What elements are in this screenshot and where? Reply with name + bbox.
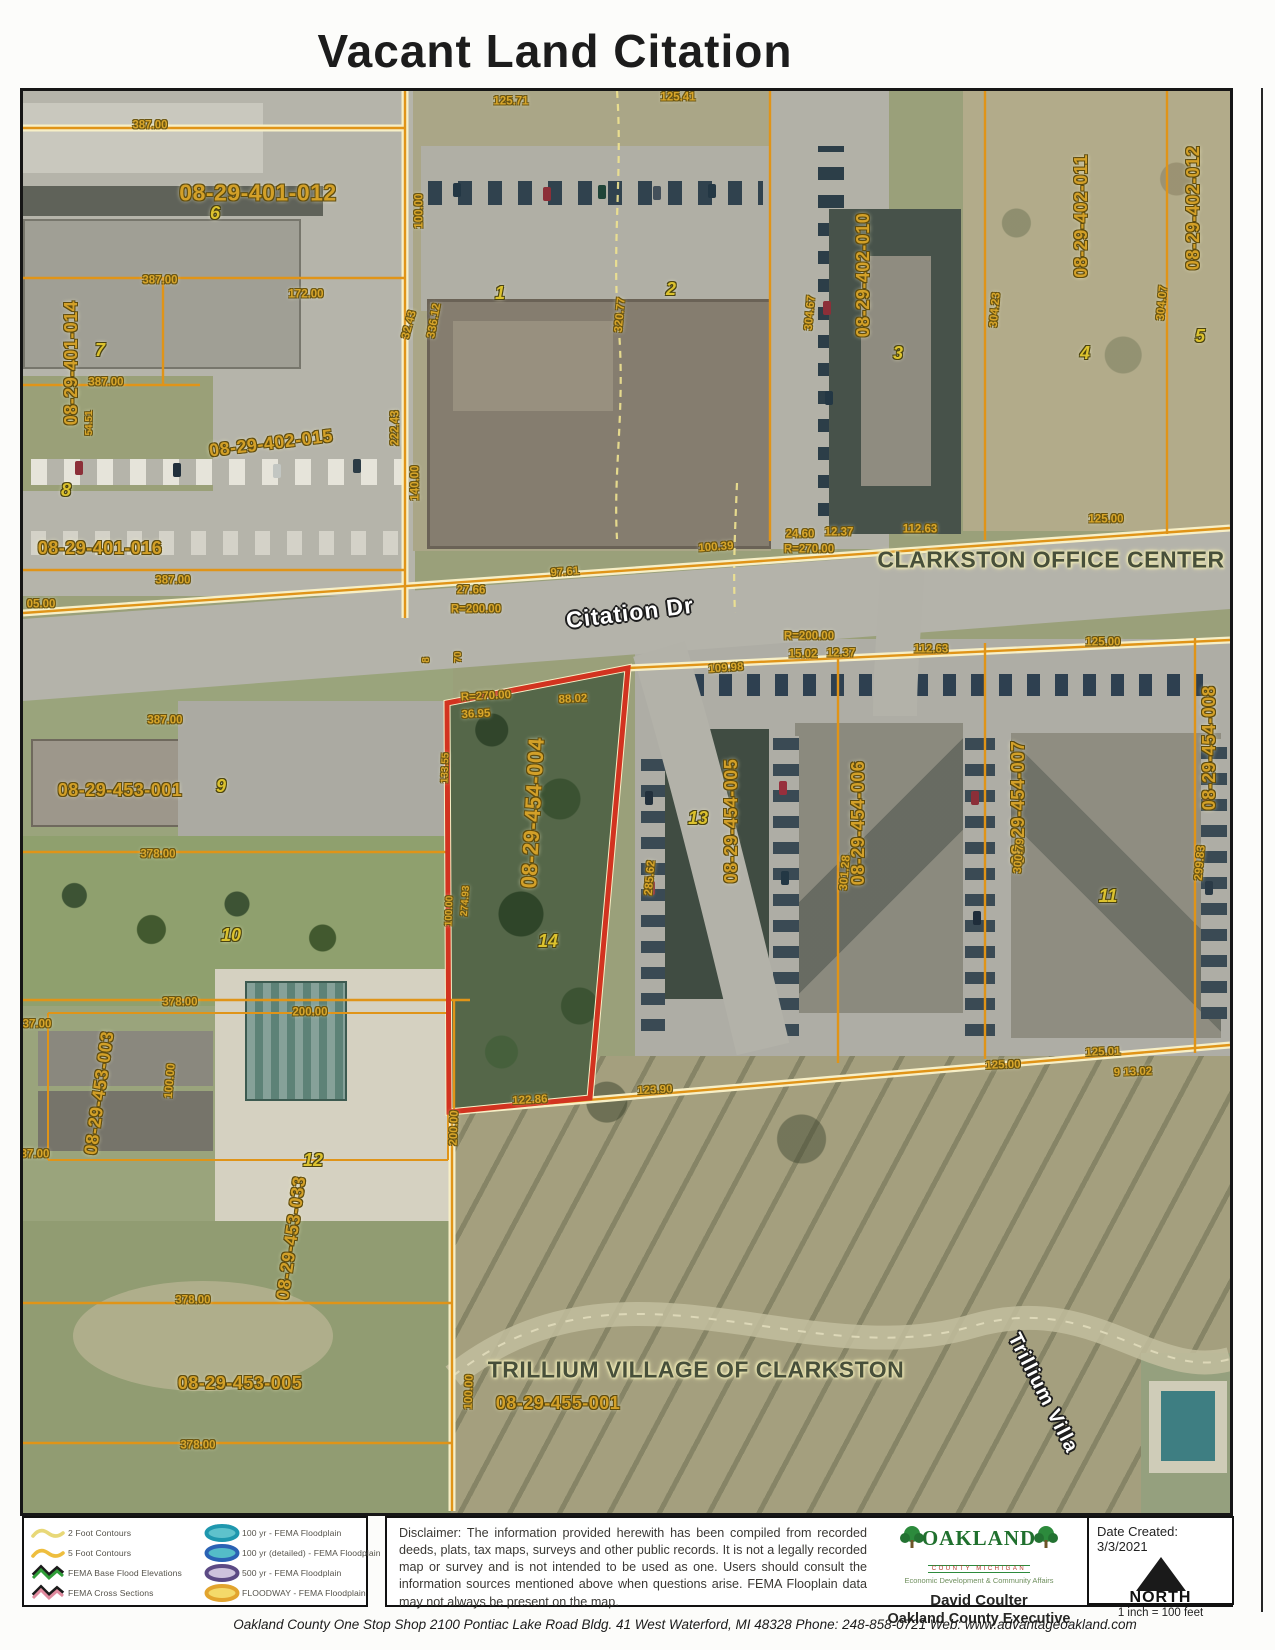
legend-column-left: 2 Foot Contours5 Foot ContoursFEMA Base … <box>28 1523 182 1603</box>
map-label: 08-29-454-005 <box>722 759 740 884</box>
map-label: R=270.00 <box>461 690 512 704</box>
map-label: 9 13.02 <box>1114 1067 1153 1080</box>
map-legend: 2 Foot Contours5 Foot ContoursFEMA Base … <box>22 1516 368 1607</box>
map-label: 125.00 <box>985 1060 1021 1073</box>
map-label: CLARKSTON OFFICE CENTER <box>877 549 1224 572</box>
map-label: 08-29-401-016 <box>38 539 163 557</box>
map-label: 1 <box>495 284 505 302</box>
contour-5ft-icon <box>28 1545 68 1561</box>
map-label: 9 <box>216 777 226 795</box>
map-label: 08-29-453-005 <box>178 1374 303 1392</box>
floodplain-100yr-detailed-icon <box>202 1544 242 1562</box>
map-label: 123.90 <box>637 1084 673 1097</box>
floodplain-500yr-icon <box>202 1564 242 1582</box>
floodway-icon <box>202 1584 242 1602</box>
legend-item: 100 yr (detailed) - FEMA Floodplain <box>202 1543 381 1563</box>
map-label: 301.28 <box>839 855 854 891</box>
map-label: 387.00 <box>142 275 177 287</box>
north-label: NORTH <box>1089 1589 1232 1607</box>
legend-item: 100 yr - FEMA Floodplain <box>202 1523 381 1543</box>
org-subtitle: COUNTY MICHIGAN <box>928 1565 1030 1573</box>
map-label: 12.37 <box>825 527 854 539</box>
map-label: 304.67 <box>804 295 819 331</box>
executive-name: David Coulter <box>879 1592 1079 1609</box>
org-name: OAKLAND <box>922 1526 1036 1550</box>
map-label: 2 <box>666 280 676 298</box>
map-label: 304.07 <box>1156 285 1171 321</box>
map-label: 13 <box>688 809 708 827</box>
page-title: Vacant Land Citation <box>0 24 1110 78</box>
tree-icon <box>1034 1526 1058 1548</box>
legend-item: 2 Foot Contours <box>28 1523 182 1543</box>
map-label: 387.00 <box>155 575 190 587</box>
legend-item: 500 yr - FEMA Floodplain <box>202 1563 381 1583</box>
info-panel: Disclaimer: The information provided her… <box>385 1516 1233 1607</box>
map-label: 6 <box>210 204 220 222</box>
map-label: 125.71 <box>493 96 528 108</box>
oakland-county-logo: OAKLAND <box>894 1522 1064 1552</box>
map-label: 12 <box>303 1151 323 1169</box>
map-label: 300.79 <box>1013 838 1028 874</box>
map-label: 4 <box>1080 344 1090 362</box>
map-label: 97.61 <box>550 566 580 579</box>
floodplain-100yr-icon <box>202 1524 242 1542</box>
map-label: R=270.00 <box>784 544 834 556</box>
map-label: 32.43 <box>401 310 420 341</box>
legend-item-label: 100 yr (detailed) - FEMA Floodplain <box>242 1548 381 1558</box>
map-label: 100.00 <box>464 1374 477 1410</box>
vacant-land-citation-page: { "title": "Vacant Land Citation", "map"… <box>0 0 1275 1650</box>
map-label: 08-29-402-011 <box>1072 154 1090 278</box>
credit-block: OAKLAND COUNTY MICHIGAN Economic Develop… <box>879 1522 1079 1627</box>
map-label: 08-29-453-003 <box>81 1030 116 1156</box>
map-label: 378.00 <box>162 997 197 1009</box>
map-label: 88.02 <box>558 694 587 707</box>
map-label: 304.23 <box>989 292 1004 328</box>
map-label: 08-29-402-012 <box>1184 146 1202 271</box>
map-label: 15.02 <box>789 649 818 661</box>
map-label: 109.98 <box>708 662 744 676</box>
date-north-box: Date Created: 3/3/2021 NORTH 1 inch = 10… <box>1087 1516 1234 1605</box>
map-label: 378.00 <box>175 1295 210 1307</box>
map-label: 5 <box>1195 327 1205 345</box>
map-label: 12.37 <box>827 648 856 660</box>
map-label: 125.41 <box>660 92 695 104</box>
map-label-layer: 387.0008-29-401-0126387.00172.0008-29-40… <box>23 91 1230 1513</box>
map-label: 133.55 <box>440 753 451 784</box>
map-label: 10 <box>221 926 241 944</box>
legend-item-label: 100 yr - FEMA Floodplain <box>242 1528 341 1538</box>
map-label: 24.60 <box>786 529 815 541</box>
map-label: 200.00 <box>449 1110 462 1146</box>
map-label: 08-29-455-001 <box>496 1394 621 1412</box>
legend-item-label: 2 Foot Contours <box>68 1528 131 1538</box>
map-label: 27.66 <box>457 585 486 597</box>
map-label: TRILLIUM VILLAGE OF CLARKSTON <box>488 1359 905 1382</box>
map-label: 11 <box>1099 887 1118 905</box>
disclaimer-text: Disclaimer: The information provided her… <box>399 1525 867 1611</box>
map-label: 08-29-401-012 <box>179 182 336 205</box>
fema-base-flood-elevations-icon <box>28 1564 68 1582</box>
legend-item: FEMA Cross Sections <box>28 1583 182 1603</box>
fema-cross-sections-icon <box>28 1584 68 1602</box>
map-label: 37.00 <box>23 1019 52 1031</box>
map-label: 125.00 <box>1088 514 1123 526</box>
map-label: 122.86 <box>512 1094 548 1107</box>
sheet-edge-line <box>1261 88 1263 1612</box>
footer-address-line: Oakland County One Stop Shop 2100 Pontia… <box>130 1617 1240 1632</box>
map-label: 08-29-401-014 <box>62 301 80 426</box>
map-label: 336.12 <box>426 303 443 340</box>
map-label: 172.00 <box>288 289 323 301</box>
map-label: 387.00 <box>132 120 167 132</box>
map-label: 100.00 <box>164 1063 179 1099</box>
map-label: R=200.00 <box>451 604 501 616</box>
map-label: 200.00 <box>292 1007 327 1019</box>
legend-item: 5 Foot Contours <box>28 1543 182 1563</box>
map-label: 378.00 <box>140 849 175 861</box>
map-label: 100.00 <box>444 896 455 927</box>
legend-item-label: FLOODWAY - FEMA Floodplain <box>242 1588 366 1598</box>
map-label: 08-29-454-004 <box>518 737 548 889</box>
map-label: 7 <box>95 341 105 359</box>
aerial-parcel-map: 387.0008-29-401-0126387.00172.0008-29-40… <box>20 88 1233 1516</box>
map-label: 387.00 <box>88 377 123 389</box>
map-label: 8 <box>61 481 71 499</box>
org-department: Economic Development & Community Affairs <box>879 1576 1079 1585</box>
map-label: R=200.00 <box>784 631 834 643</box>
map-label: 112.63 <box>914 644 949 656</box>
map-label: 140.00 <box>410 465 422 500</box>
map-label: 08-29-454-008 <box>1200 686 1218 811</box>
map-label: 08-29-402-015 <box>208 426 334 459</box>
legend-column-right: 100 yr - FEMA Floodplain100 yr (detailed… <box>202 1523 381 1603</box>
map-label: 100.39 <box>698 541 734 555</box>
map-label: 3 <box>893 344 903 362</box>
map-label: 70 <box>454 651 464 662</box>
map-label: 125.00 <box>1085 637 1120 649</box>
map-label: 387.00 <box>147 715 182 727</box>
map-label: 112.63 <box>903 524 938 536</box>
legend-item-label: 5 Foot Contours <box>68 1548 131 1558</box>
map-label: 08-29-453-001 <box>58 781 183 799</box>
map-label: 274.93 <box>460 885 472 916</box>
map-label: 05.00 <box>27 599 56 611</box>
map-label: 8 <box>422 657 432 663</box>
map-label: 08-29-453-033 <box>273 1175 308 1301</box>
map-label: 285.62 <box>644 860 659 896</box>
legend-item: FEMA Base Flood Elevations <box>28 1563 182 1583</box>
map-label: 299.83 <box>1194 845 1209 881</box>
north-arrow-icon <box>1136 1557 1186 1591</box>
legend-item-label: FEMA Cross Sections <box>68 1588 153 1598</box>
map-label: 08-29-402-010 <box>854 213 872 338</box>
tree-icon <box>900 1526 924 1548</box>
map-label: 320.77 <box>614 297 629 333</box>
legend-item-label: FEMA Base Flood Elevations <box>68 1568 182 1578</box>
legend-item-label: 500 yr - FEMA Floodplain <box>242 1568 341 1578</box>
map-label: 36.95 <box>461 709 490 722</box>
map-label: Trillium Villa <box>1004 1330 1081 1456</box>
contour-2ft-icon <box>28 1525 68 1541</box>
map-label: 54.51 <box>85 410 95 435</box>
map-label: 37.00 <box>21 1149 50 1161</box>
map-label: 100.00 <box>414 193 426 228</box>
map-label: 125.01 <box>1085 1047 1121 1060</box>
map-label: 222.43 <box>390 410 402 445</box>
date-created: Date Created: 3/3/2021 <box>1097 1524 1232 1554</box>
map-label: 14 <box>538 932 558 950</box>
map-label: 378.00 <box>180 1440 215 1452</box>
map-label: Citation Dr <box>565 594 695 632</box>
legend-item: FLOODWAY - FEMA Floodplain <box>202 1583 381 1603</box>
